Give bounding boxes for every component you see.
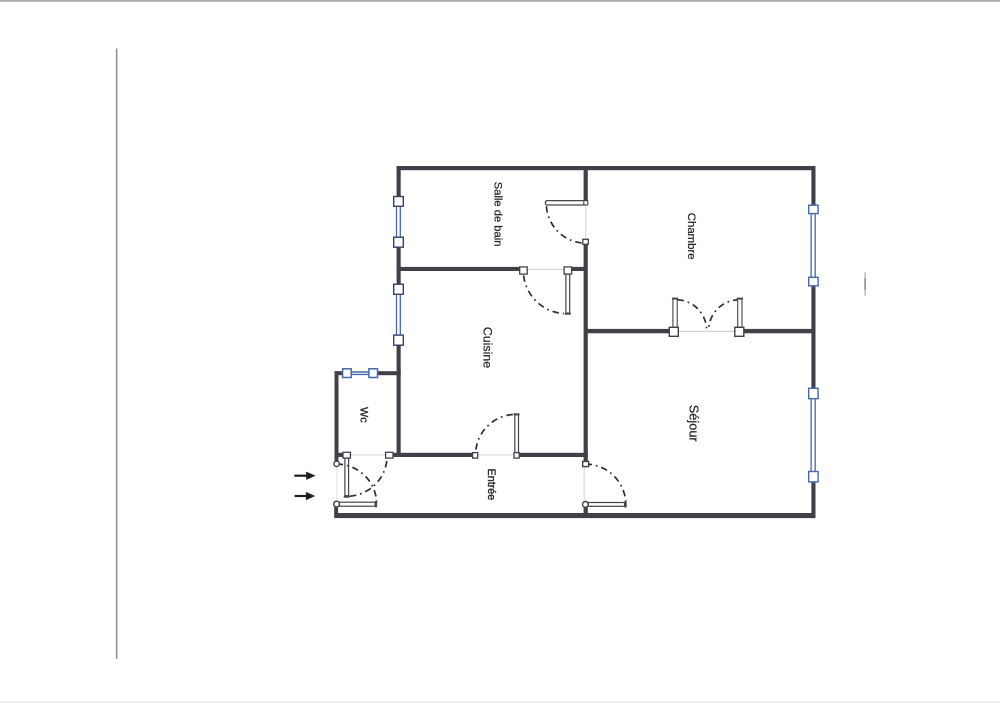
svg-text:Séjour: Séjour xyxy=(687,405,702,443)
svg-text:Chambre: Chambre xyxy=(685,213,697,260)
svg-text:Salle de bain: Salle de bain xyxy=(492,182,504,247)
svg-text:Entrée: Entrée xyxy=(485,468,497,500)
svg-text:Cuisine: Cuisine xyxy=(481,327,495,368)
svg-text:Wc: Wc xyxy=(358,407,370,423)
